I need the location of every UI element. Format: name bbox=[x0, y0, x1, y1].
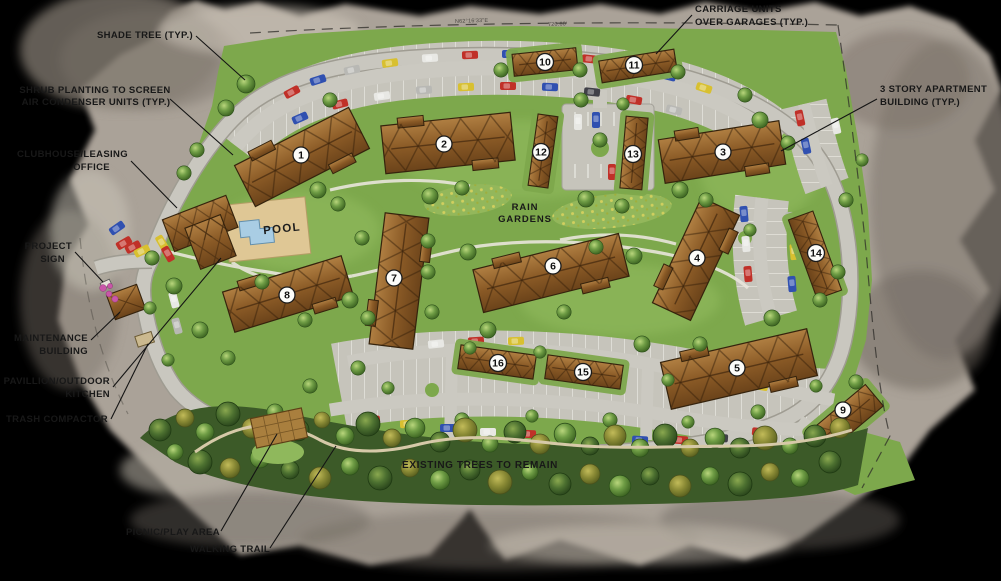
site-plan-page: POOL bbox=[0, 0, 1001, 581]
pool-area: POOL bbox=[223, 197, 311, 262]
svg-text:7: 7 bbox=[391, 273, 397, 285]
svg-text:13: 13 bbox=[627, 149, 639, 161]
svg-text:3 STORY APARTMENT: 3 STORY APARTMENT bbox=[880, 84, 987, 95]
badge-7: 7 bbox=[386, 270, 402, 286]
svg-text:BUILDING (TYP.): BUILDING (TYP.) bbox=[880, 97, 960, 108]
svg-text:KITCHEN: KITCHEN bbox=[65, 389, 110, 400]
svg-text:OFFICE: OFFICE bbox=[73, 162, 110, 173]
badge-1: 1 bbox=[293, 147, 309, 163]
badge-4: 4 bbox=[689, 250, 705, 266]
svg-text:CARRIAGE UNITS: CARRIAGE UNITS bbox=[695, 4, 782, 15]
svg-text:16: 16 bbox=[492, 358, 504, 370]
svg-text:11: 11 bbox=[628, 60, 639, 72]
svg-text:RAIN: RAIN bbox=[512, 202, 539, 213]
site-plan-svg: POOL bbox=[0, 0, 1001, 581]
badge-11: 11 bbox=[626, 57, 643, 74]
badge-8: 8 bbox=[279, 287, 295, 303]
svg-text:PAVILLION/OUTDOOR: PAVILLION/OUTDOOR bbox=[4, 376, 110, 387]
badge-6: 6 bbox=[545, 258, 561, 274]
badge-10: 10 bbox=[537, 54, 554, 71]
svg-text:AIR CONDENSER UNITS (TYP.): AIR CONDENSER UNITS (TYP.) bbox=[22, 97, 171, 108]
badge-12: 12 bbox=[533, 144, 550, 161]
svg-text:MAINTENANCE: MAINTENANCE bbox=[14, 333, 88, 344]
svg-text:5: 5 bbox=[734, 363, 740, 375]
svg-text:OVER GARAGES (TYP.): OVER GARAGES (TYP.) bbox=[695, 17, 808, 28]
svg-text:WALKING TRAIL: WALKING TRAIL bbox=[190, 544, 270, 555]
svg-text:9: 9 bbox=[840, 405, 846, 417]
badge-16: 16 bbox=[490, 355, 507, 372]
badge-5: 5 bbox=[729, 360, 745, 376]
svg-text:SHRUB PLANTING TO SCREEN: SHRUB PLANTING TO SCREEN bbox=[19, 85, 170, 96]
svg-text:8: 8 bbox=[284, 290, 290, 302]
svg-text:SHADE TREE (TYP.): SHADE TREE (TYP.) bbox=[97, 30, 193, 41]
label-existing-trees: EXISTING TREES TO REMAIN bbox=[402, 460, 558, 471]
badge-15: 15 bbox=[575, 364, 592, 381]
badge-9: 9 bbox=[835, 402, 851, 418]
badge-13: 13 bbox=[625, 146, 642, 163]
svg-text:12: 12 bbox=[535, 147, 547, 159]
svg-text:6: 6 bbox=[550, 261, 556, 273]
svg-text:3: 3 bbox=[720, 147, 726, 159]
svg-text:15: 15 bbox=[577, 367, 589, 379]
svg-text:SIGN: SIGN bbox=[40, 254, 65, 265]
svg-text:1: 1 bbox=[298, 150, 304, 162]
badge-2: 2 bbox=[436, 136, 452, 152]
svg-text:PICNIC/PLAY AREA: PICNIC/PLAY AREA bbox=[126, 527, 220, 538]
svg-text:4: 4 bbox=[694, 253, 700, 265]
svg-text:CLUBHOUSE/LEASING: CLUBHOUSE/LEASING bbox=[17, 149, 128, 160]
svg-text:10: 10 bbox=[539, 57, 551, 69]
svg-text:GARDENS: GARDENS bbox=[498, 214, 552, 225]
survey-bearing: N62°16'33"E bbox=[455, 18, 489, 25]
svg-text:TRASH COMPACTOR: TRASH COMPACTOR bbox=[6, 414, 108, 425]
svg-text:PROJECT: PROJECT bbox=[25, 241, 72, 252]
survey-distance: 720.60' bbox=[548, 21, 567, 28]
badge-3: 3 bbox=[715, 144, 731, 160]
svg-text:2: 2 bbox=[441, 139, 447, 151]
svg-text:EXISTING TREES TO REMAIN: EXISTING TREES TO REMAIN bbox=[402, 460, 558, 471]
badge-14: 14 bbox=[808, 245, 825, 262]
svg-text:14: 14 bbox=[810, 248, 822, 260]
entrance-road bbox=[96, 261, 152, 268]
svg-text:BUILDING: BUILDING bbox=[39, 346, 88, 357]
